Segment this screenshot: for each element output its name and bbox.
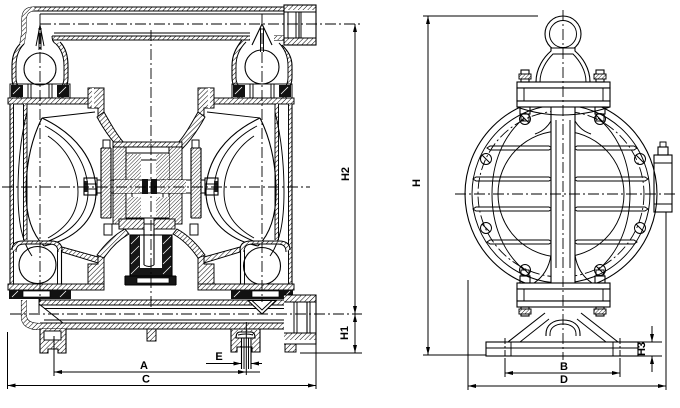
svg-text:H1: H1	[339, 326, 351, 340]
svg-text:H3: H3	[636, 342, 648, 356]
svg-text:D: D	[560, 374, 568, 386]
svg-text:H2: H2	[340, 167, 352, 181]
svg-text:A: A	[140, 360, 148, 372]
svg-text:B: B	[560, 361, 568, 373]
svg-text:H: H	[411, 179, 423, 187]
svg-text:C: C	[142, 374, 150, 386]
svg-text:E: E	[215, 351, 222, 363]
